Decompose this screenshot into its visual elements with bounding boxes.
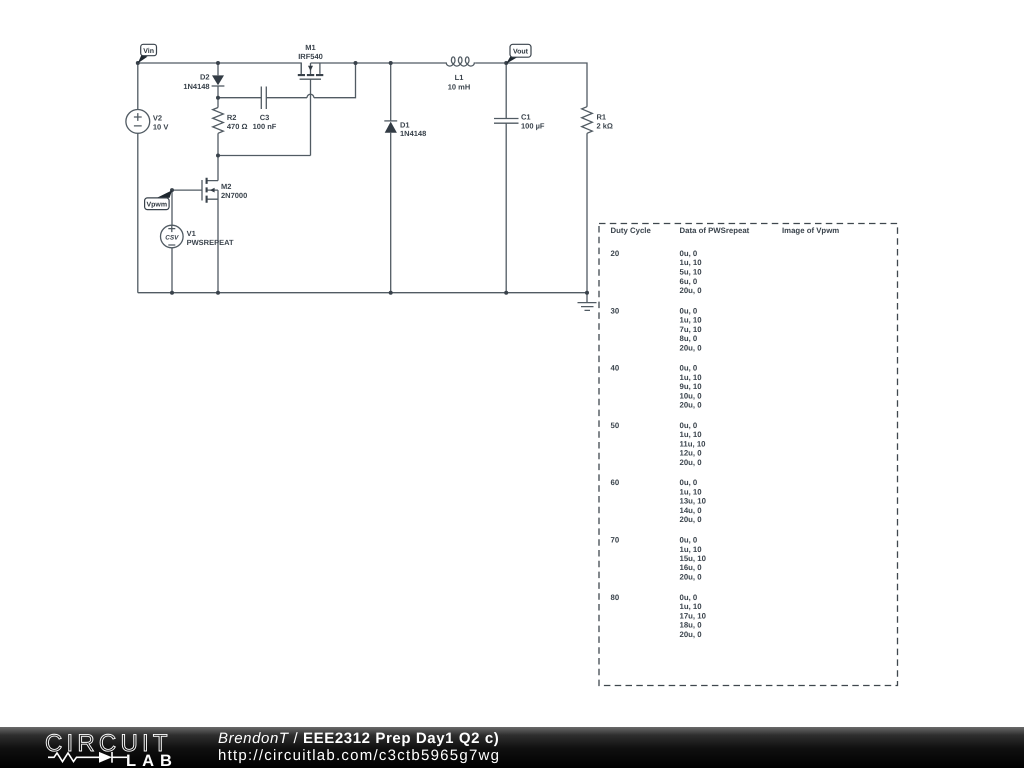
svg-text:20: 20: [611, 249, 620, 258]
svg-text:60: 60: [611, 478, 620, 487]
svg-text:Duty Cycle: Duty Cycle: [611, 226, 652, 235]
svg-text:Vout: Vout: [513, 49, 529, 56]
svg-text:11u, 10: 11u, 10: [680, 439, 707, 448]
svg-text:R2: R2: [227, 113, 237, 122]
svg-text:IRF540: IRF540: [298, 52, 323, 61]
svg-text:9u, 10: 9u, 10: [680, 382, 703, 391]
svg-text:16u, 0: 16u, 0: [680, 563, 703, 572]
svg-text:10 mH: 10 mH: [448, 82, 471, 91]
svg-text:13u, 10: 13u, 10: [680, 497, 707, 506]
svg-text:L1: L1: [455, 73, 464, 82]
svg-text:1u, 10: 1u, 10: [680, 602, 703, 611]
svg-text:20u, 0: 20u, 0: [680, 573, 703, 582]
svg-text:0u, 0: 0u, 0: [680, 306, 698, 315]
svg-text:M2: M2: [221, 182, 231, 191]
svg-text:470 Ω: 470 Ω: [227, 122, 248, 131]
svg-text:5u, 10: 5u, 10: [680, 268, 703, 277]
svg-text:BrendonT / EEE2312 Prep Day1 Q: BrendonT / EEE2312 Prep Day1 Q2 c): [218, 730, 499, 747]
svg-text:1u, 10: 1u, 10: [680, 373, 703, 382]
svg-text:80: 80: [611, 593, 620, 602]
svg-text:6u, 0: 6u, 0: [680, 277, 698, 286]
svg-text:C3: C3: [260, 113, 270, 122]
svg-text:1u, 10: 1u, 10: [680, 316, 703, 325]
svg-text:0u, 0: 0u, 0: [680, 536, 698, 545]
svg-text:Image of Vpwm: Image of Vpwm: [782, 226, 839, 235]
svg-text:Vpwm: Vpwm: [146, 202, 167, 209]
svg-text:0u, 0: 0u, 0: [680, 249, 698, 258]
svg-text:20u, 0: 20u, 0: [680, 286, 703, 295]
svg-text:0u, 0: 0u, 0: [680, 364, 698, 373]
svg-text:40: 40: [611, 364, 620, 373]
svg-text:18u, 0: 18u, 0: [680, 621, 703, 630]
svg-text:7u, 10: 7u, 10: [680, 325, 703, 334]
svg-text:14u, 0: 14u, 0: [680, 506, 703, 515]
svg-text:1u, 10: 1u, 10: [680, 430, 703, 439]
svg-text:12u, 0: 12u, 0: [680, 449, 703, 458]
svg-text:D1: D1: [400, 120, 410, 129]
svg-text:2N7000: 2N7000: [221, 191, 247, 200]
svg-text:100 µF: 100 µF: [521, 121, 545, 130]
svg-text:LAB: LAB: [126, 752, 178, 768]
svg-text:20u, 0: 20u, 0: [680, 458, 703, 467]
svg-text:PWSREPEAT: PWSREPEAT: [187, 238, 234, 247]
svg-text:1u, 10: 1u, 10: [680, 545, 703, 554]
svg-text:10u, 0: 10u, 0: [680, 391, 703, 400]
svg-text:70: 70: [611, 536, 620, 545]
svg-text:M1: M1: [305, 43, 315, 52]
svg-text:0u, 0: 0u, 0: [680, 421, 698, 430]
svg-text:0u, 0: 0u, 0: [680, 478, 698, 487]
svg-text:15u, 10: 15u, 10: [680, 554, 707, 563]
svg-text:20u, 0: 20u, 0: [680, 630, 703, 639]
svg-text:2 kΩ: 2 kΩ: [597, 121, 613, 130]
svg-text:CSV: CSV: [165, 235, 179, 242]
svg-text:20u, 0: 20u, 0: [680, 343, 703, 352]
svg-text:50: 50: [611, 421, 620, 430]
svg-text:100 nF: 100 nF: [253, 122, 277, 131]
svg-text:20u, 0: 20u, 0: [680, 401, 703, 410]
svg-text:Data of PWSrepeat: Data of PWSrepeat: [680, 226, 750, 235]
svg-text:8u, 0: 8u, 0: [680, 334, 698, 343]
svg-text:1u, 10: 1u, 10: [680, 258, 703, 267]
svg-text:17u, 10: 17u, 10: [680, 611, 707, 620]
svg-text:20u, 0: 20u, 0: [680, 515, 703, 524]
svg-text:Vin: Vin: [143, 47, 154, 55]
svg-text:1u, 10: 1u, 10: [680, 487, 703, 496]
svg-text:10 V: 10 V: [153, 122, 168, 131]
svg-text:1N4148: 1N4148: [183, 82, 209, 91]
svg-text:V2: V2: [153, 114, 162, 123]
svg-text:http://circuitlab.com/c3ctb596: http://circuitlab.com/c3ctb5965g7wg: [218, 747, 500, 764]
svg-text:30: 30: [611, 306, 620, 315]
svg-text:1N4148: 1N4148: [400, 129, 426, 138]
svg-text:0u, 0: 0u, 0: [680, 593, 698, 602]
svg-text:D2: D2: [200, 73, 210, 82]
svg-text:C1: C1: [521, 113, 531, 122]
svg-text:V1: V1: [187, 229, 196, 238]
svg-text:R1: R1: [597, 112, 607, 121]
